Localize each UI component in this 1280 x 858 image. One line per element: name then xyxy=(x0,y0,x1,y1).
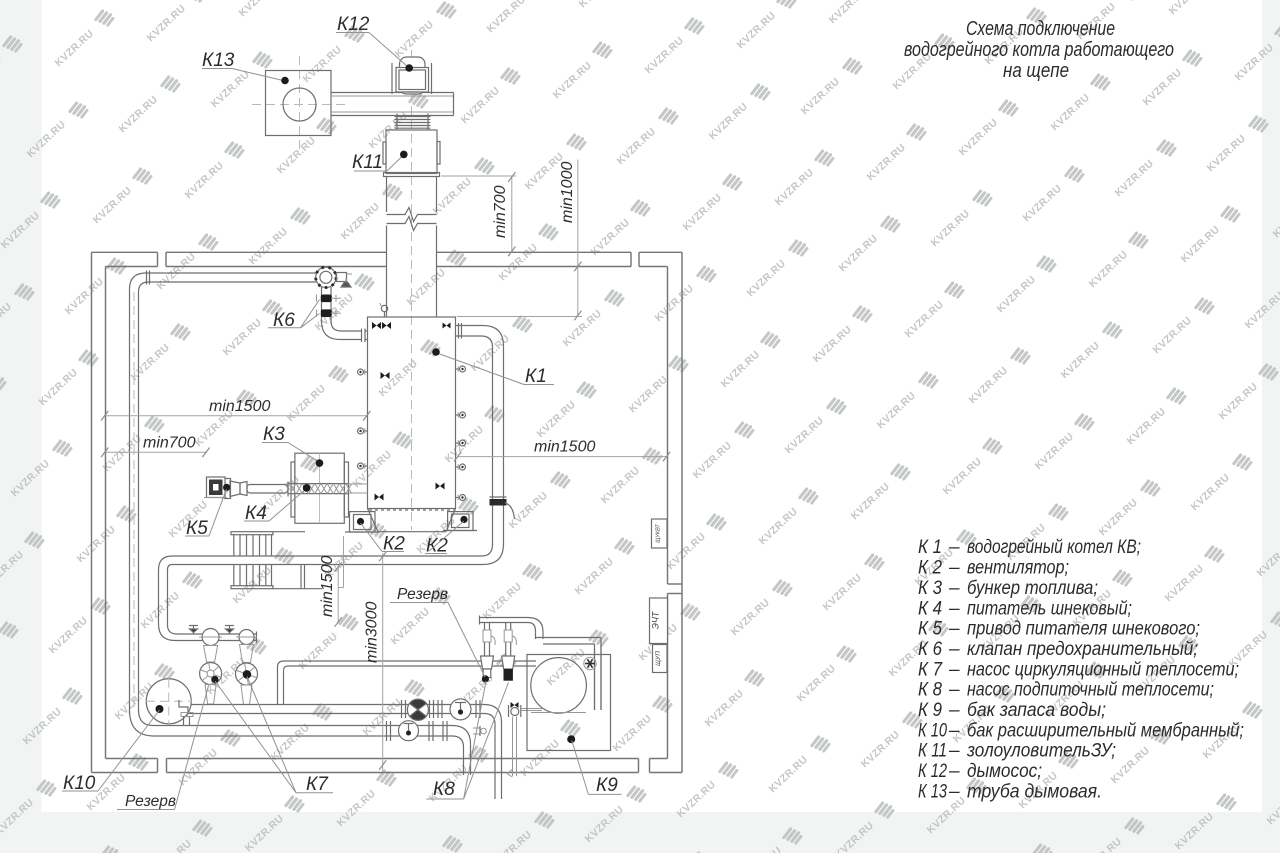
svg-text:ЩУП: ЩУП xyxy=(655,651,662,666)
svg-text:К 9: К 9 xyxy=(918,700,942,721)
svg-text:–: – xyxy=(948,578,960,599)
svg-text:насос подпиточный теплосети;: насос подпиточный теплосети; xyxy=(967,680,1214,701)
svg-text:–: – xyxy=(948,537,960,558)
svg-text:К8: К8 xyxy=(433,779,455,800)
svg-text:–: – xyxy=(948,781,960,802)
svg-text:min1000: min1000 xyxy=(559,162,576,223)
svg-text:К11: К11 xyxy=(352,152,383,173)
svg-text:труба дымовая.: труба дымовая. xyxy=(967,781,1102,802)
svg-text:К3: К3 xyxy=(263,424,285,445)
svg-text:насос циркуляционный теплосети: насос циркуляционный теплосети; xyxy=(967,659,1239,680)
svg-text:бак запаса воды;: бак запаса воды; xyxy=(967,700,1106,721)
svg-text:золоуловительЗУ;: золоуловительЗУ; xyxy=(966,741,1116,762)
svg-text:–: – xyxy=(948,720,960,741)
svg-text:К 13: К 13 xyxy=(918,781,947,802)
svg-text:К 3: К 3 xyxy=(918,578,942,599)
svg-text:ЩУКВТ: ЩУКВТ xyxy=(656,524,662,543)
svg-text:водогрейного котла работающего: водогрейного котла работающего xyxy=(904,39,1174,61)
svg-text:Резерв: Резерв xyxy=(397,586,448,603)
svg-text:К 11: К 11 xyxy=(918,741,947,762)
svg-text:–: – xyxy=(948,639,960,660)
svg-text:–: – xyxy=(948,741,960,762)
svg-text:на щепе: на щепе xyxy=(1003,60,1069,82)
svg-text:min1500: min1500 xyxy=(319,556,336,617)
svg-text:дымосос;: дымосос; xyxy=(967,761,1042,782)
svg-text:К9: К9 xyxy=(596,775,618,796)
svg-text:К 5: К 5 xyxy=(918,619,942,640)
svg-text:вентилятор;: вентилятор; xyxy=(967,558,1069,579)
svg-text:–: – xyxy=(948,700,960,721)
svg-text:К 7: К 7 xyxy=(918,659,943,680)
svg-text:К 4: К 4 xyxy=(918,598,942,619)
svg-text:К13: К13 xyxy=(202,50,235,71)
svg-text:–: – xyxy=(948,680,960,701)
svg-text:К12: К12 xyxy=(337,14,370,35)
svg-text:К 1: К 1 xyxy=(918,537,942,558)
svg-text:–: – xyxy=(948,659,960,680)
svg-text:К 8: К 8 xyxy=(918,680,942,701)
svg-text:ЭЧТ: ЭЧТ xyxy=(651,610,661,629)
svg-text:водогрейный котел КВ;: водогрейный котел КВ; xyxy=(967,537,1141,558)
svg-text:min1500: min1500 xyxy=(534,439,595,456)
svg-text:К 2: К 2 xyxy=(918,558,942,579)
svg-text:–: – xyxy=(948,619,960,640)
svg-text:К 12: К 12 xyxy=(918,761,947,782)
svg-text:Резерв: Резерв xyxy=(125,793,176,810)
svg-text:–: – xyxy=(948,558,960,579)
svg-text:К1: К1 xyxy=(525,366,547,387)
svg-text:К 6: К 6 xyxy=(918,639,942,660)
svg-text:К7: К7 xyxy=(306,774,329,795)
svg-text:min3000: min3000 xyxy=(364,602,381,663)
svg-text:бункер топлива;: бункер топлива; xyxy=(967,578,1098,599)
svg-text:К 10: К 10 xyxy=(918,720,947,741)
svg-text:–: – xyxy=(948,598,960,619)
svg-text:min700: min700 xyxy=(143,435,196,452)
svg-text:–: – xyxy=(948,761,960,782)
svg-text:Схема подключение: Схема подключение xyxy=(966,18,1115,40)
svg-text:min1500: min1500 xyxy=(209,398,270,415)
svg-text:привод питателя шнекового;: привод питателя шнекового; xyxy=(967,619,1200,640)
svg-text:min700: min700 xyxy=(492,185,509,238)
svg-text:клапан предохранительный;: клапан предохранительный; xyxy=(967,639,1198,660)
svg-text:бак расширительный мембранный;: бак расширительный мембранный; xyxy=(967,720,1244,741)
svg-text:питатель шнековый;: питатель шнековый; xyxy=(967,598,1132,619)
